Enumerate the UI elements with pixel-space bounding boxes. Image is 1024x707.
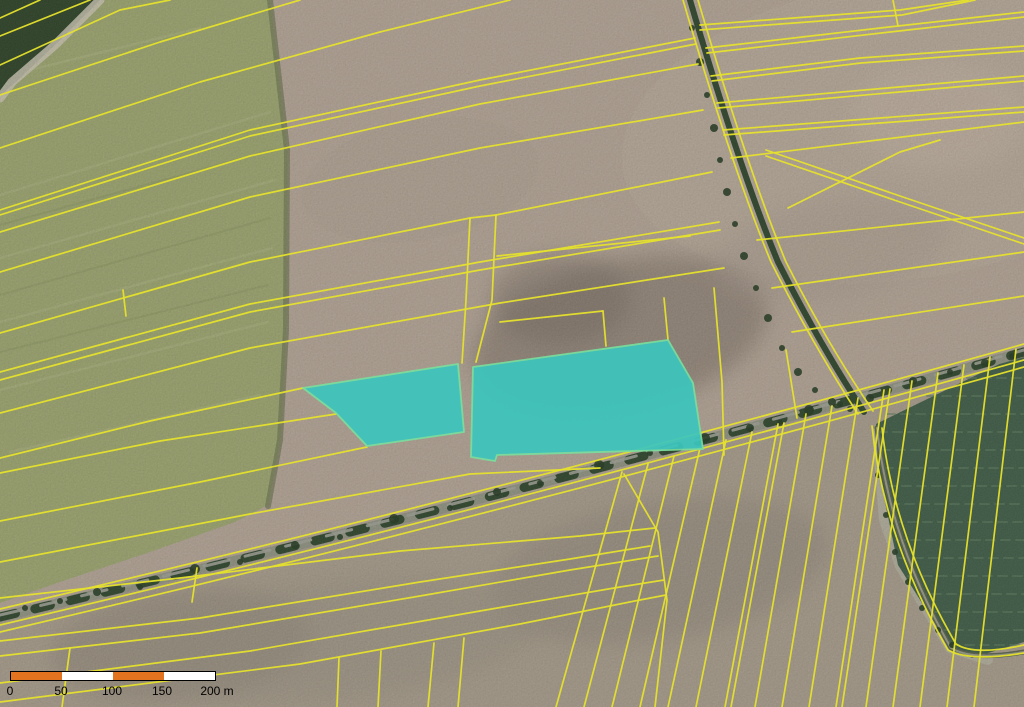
scale-label-50: 50 — [54, 684, 67, 698]
scale-bar-labels: 0 50 100 150 200 m — [10, 684, 250, 700]
grain-light — [0, 0, 1024, 707]
scale-label-0: 0 — [7, 684, 14, 698]
scale-bar-segment — [164, 672, 215, 680]
scale-bar-segment — [62, 672, 113, 680]
map-canvas[interactable] — [0, 0, 1024, 707]
scale-label-150: 150 — [152, 684, 172, 698]
scale-bar-segment — [113, 672, 164, 680]
scale-label-200m: 200 m — [200, 684, 233, 698]
scale-label-100: 100 — [102, 684, 122, 698]
scale-bar: 0 50 100 150 200 m — [10, 671, 250, 703]
map-viewport[interactable]: 0 50 100 150 200 m — [0, 0, 1024, 707]
scale-bar-segments — [10, 671, 216, 681]
scale-bar-segment — [11, 672, 62, 680]
